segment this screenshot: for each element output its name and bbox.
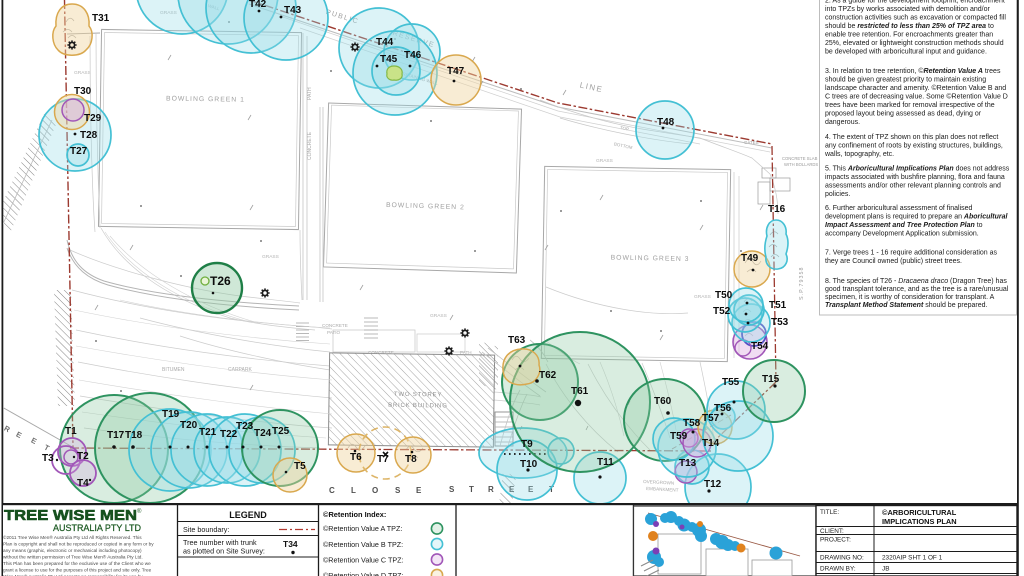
- svg-text:DRAWN BY:: DRAWN BY:: [820, 566, 856, 573]
- svg-text:BOWLING GREEN 3: BOWLING GREEN 3: [611, 255, 690, 263]
- svg-text:T24: T24: [254, 428, 272, 439]
- svg-text:8. The species of T26 - Dracae: 8. The species of T26 - Dracaena draco (…: [825, 278, 1007, 285]
- svg-text:GRASS: GRASS: [694, 294, 711, 300]
- svg-text:T59: T59: [670, 431, 688, 442]
- svg-text:©Retention Value D TPZ:: ©Retention Value D TPZ:: [323, 571, 404, 576]
- svg-text:©Retention Value C TPZ:: ©Retention Value C TPZ:: [323, 556, 404, 565]
- svg-text:E: E: [416, 486, 422, 495]
- svg-text:enable tree retention. For en: enable tree retention. For encroachments…: [825, 32, 993, 39]
- svg-text:3. In relation to tree retenti: 3. In relation to tree retention, ©Reten…: [825, 67, 1001, 75]
- svg-text:GRASS: GRASS: [430, 313, 447, 319]
- svg-text:trees have been marked for rem: trees have been marked for removal irres…: [825, 102, 995, 109]
- svg-text:S.P.79358: S.P.79358: [799, 267, 805, 300]
- svg-text:T42: T42: [249, 0, 267, 10]
- svg-text:T62: T62: [539, 370, 557, 381]
- svg-text:©Retention Value B TPZ:: ©Retention Value B TPZ:: [323, 540, 403, 549]
- svg-text:Impact Assessment and Tree Pro: Impact Assessment and Tree Protection Pl…: [825, 222, 983, 229]
- svg-text:AUSTRALIA PTY LTD: AUSTRALIA PTY LTD: [53, 523, 141, 534]
- svg-text:T19: T19: [162, 409, 180, 420]
- svg-text:any confinement of roots by ex: any confinement of roots by existing str…: [825, 143, 1003, 150]
- svg-text:development plans is required: development plans is required to prepare…: [825, 214, 1009, 221]
- svg-text:T23: T23: [236, 421, 254, 432]
- svg-text:good transplant tolerance, and: good transplant tolerance, and as the tr…: [825, 286, 1009, 293]
- svg-text:T45: T45: [380, 54, 398, 65]
- svg-text:Transplant Method Statement sh: Transplant Method Statement should be pr…: [825, 302, 988, 309]
- svg-text:T29: T29: [84, 113, 102, 124]
- svg-text:T17: T17: [107, 430, 125, 441]
- svg-text:IMPLICATIONS PLAN: IMPLICATIONS PLAN: [882, 517, 957, 526]
- svg-text:proposed layout being assessed: proposed layout being assessed as dead, …: [825, 111, 982, 118]
- svg-text:GRASS: GRASS: [74, 70, 91, 76]
- svg-text:4. The extent of TPZ shown on: 4. The extent of TPZ shown on this plan …: [825, 134, 998, 141]
- svg-text:T18: T18: [125, 430, 143, 441]
- svg-text:T9: T9: [521, 439, 533, 450]
- svg-text:2. As a guide for the developm: 2. As a guide for the development footpr…: [825, 0, 1005, 5]
- svg-text:TITLE:: TITLE:: [820, 509, 839, 516]
- svg-text:S: S: [395, 486, 401, 495]
- svg-text:PATIO: PATIO: [327, 330, 341, 335]
- svg-text:into TPZs by works associated: into TPZs by works associated with demol…: [825, 6, 991, 13]
- svg-text:O: O: [372, 486, 378, 495]
- svg-text:T58: T58: [683, 418, 701, 429]
- svg-text:T10: T10: [520, 459, 538, 470]
- svg-text:C: C: [329, 486, 335, 495]
- svg-text:T28: T28: [80, 130, 98, 141]
- svg-text:accompany Development Applicat: accompany Development Application submis…: [825, 231, 979, 238]
- svg-text:T47: T47: [447, 66, 465, 77]
- svg-text:T7: T7: [377, 454, 389, 465]
- svg-text:7. Verge trees 1 - 16 require: 7. Verge trees 1 - 16 require additional…: [825, 250, 997, 257]
- svg-text:T27: T27: [70, 146, 88, 157]
- svg-text:S: S: [449, 485, 455, 494]
- svg-text:construction activities such a: construction activities such as excavati…: [825, 15, 1006, 22]
- svg-text:TREE WISE MEN: TREE WISE MEN: [4, 508, 137, 524]
- svg-text:T54: T54: [751, 341, 769, 352]
- svg-text:T44: T44: [376, 37, 394, 48]
- svg-text:BITUMEN: BITUMEN: [162, 367, 185, 373]
- svg-text:25%, elevated or lightweight c: 25%, elevated or lightweight constructio…: [825, 40, 1004, 47]
- svg-text:specimen, it is worthy of cons: specimen, it is worthy of consideration …: [825, 294, 995, 301]
- svg-text:T49: T49: [741, 253, 759, 264]
- svg-text:©ARBORICULTURAL: ©ARBORICULTURAL: [882, 508, 957, 517]
- svg-text:T43: T43: [284, 5, 302, 16]
- svg-text:C trees are of decreasing valu: C trees are of decreasing value. Some ©R…: [825, 93, 1008, 101]
- svg-text:T3: T3: [42, 453, 54, 464]
- svg-text:T61: T61: [571, 386, 589, 397]
- svg-text:T50: T50: [715, 290, 733, 301]
- svg-text:T31: T31: [92, 13, 110, 24]
- svg-text:grant a license to use for the: grant a license to use for the purposes …: [3, 568, 152, 573]
- svg-text:T63: T63: [508, 335, 526, 346]
- svg-text:T4: T4: [77, 478, 89, 489]
- svg-text:impacts associated with bushfi: impacts associated with bushfire plannin…: [825, 174, 1005, 181]
- svg-text:should be restricted to less t: should be restricted to less than 25% of…: [825, 23, 994, 30]
- svg-text:R: R: [488, 485, 494, 494]
- svg-text:CLIENT:: CLIENT:: [820, 528, 844, 535]
- svg-text:T53: T53: [771, 317, 789, 328]
- svg-text:should be given greatest prior: should be given greatest priority to mai…: [825, 77, 986, 84]
- svg-text:CONCRETE: CONCRETE: [368, 350, 394, 355]
- svg-text:T8: T8: [405, 454, 417, 465]
- svg-text:This Plan has been prepared fo: This Plan has been prepared for the excl…: [3, 561, 151, 566]
- svg-text:T34: T34: [283, 539, 298, 549]
- svg-text:T5: T5: [294, 461, 306, 472]
- svg-text:T46: T46: [404, 50, 422, 61]
- svg-text:©2011 Tree Wise Men® Australia: ©2011 Tree Wise Men® Australia Pty Ltd A…: [3, 534, 142, 540]
- svg-text:T: T: [469, 485, 474, 494]
- svg-text:T30: T30: [74, 86, 92, 97]
- svg-text:be developed with arboricultur: be developed with arboricultural input a…: [825, 49, 987, 56]
- svg-text:T52: T52: [713, 306, 731, 317]
- svg-text:policies.: policies.: [825, 191, 850, 198]
- svg-text:Site boundary:: Site boundary:: [183, 525, 229, 534]
- svg-text:as plotted on Site Survey:: as plotted on Site Survey:: [183, 547, 265, 556]
- svg-text:T20: T20: [180, 420, 198, 431]
- svg-text:T1: T1: [65, 426, 77, 437]
- svg-text:T16: T16: [768, 204, 786, 215]
- svg-text:CONCRETE: CONCRETE: [322, 323, 348, 328]
- svg-text:©Retention Index:: ©Retention Index:: [323, 510, 386, 519]
- svg-text:CONCRETE SLAB: CONCRETE SLAB: [782, 156, 818, 161]
- svg-text:DRAWING NO:: DRAWING NO:: [820, 555, 864, 562]
- svg-text:T11: T11: [597, 457, 614, 468]
- svg-text:T25: T25: [272, 426, 290, 437]
- svg-text:without the written permission: without the written permission of Tree W…: [3, 554, 143, 560]
- svg-text:landscape character and amenit: landscape character and amenity. ©Retent…: [825, 84, 1006, 92]
- svg-text:any means (graphic, electronic: any means (graphic, electronic or mechan…: [3, 548, 142, 553]
- svg-text:JB: JB: [882, 566, 889, 573]
- svg-text:T26: T26: [210, 274, 231, 288]
- svg-text:T48: T48: [657, 117, 675, 128]
- svg-text:PROJECT:: PROJECT:: [820, 537, 851, 544]
- svg-text:T13: T13: [679, 458, 697, 469]
- svg-text:GRASS: GRASS: [262, 254, 279, 260]
- svg-text:T55: T55: [722, 377, 740, 388]
- svg-text:T60: T60: [654, 396, 672, 407]
- svg-text:5. This Arboricultural Implica: 5. This Arboricultural Implications Plan…: [825, 166, 1010, 173]
- svg-text:GRASS: GRASS: [596, 158, 613, 164]
- svg-text:T2: T2: [77, 451, 89, 462]
- svg-text:they are Council owned (public: they are Council owned (public) street t…: [825, 258, 962, 265]
- svg-text:T21: T21: [199, 427, 217, 438]
- svg-text:Plan is copyright and shall no: Plan is copyright and shall not be repro…: [3, 542, 154, 547]
- svg-text:T15: T15: [762, 374, 780, 385]
- svg-text:T12: T12: [704, 479, 722, 490]
- svg-text:walls, topography, etc.: walls, topography, etc.: [824, 151, 894, 158]
- svg-text:PATH: PATH: [460, 350, 472, 355]
- svg-text:©Retention Value A TPZ:: ©Retention Value A TPZ:: [323, 524, 402, 533]
- svg-text:WITH BOLLARDS: WITH BOLLARDS: [784, 162, 818, 167]
- svg-text:6. Further arboricultural asse: 6. Further arboricultural assessment of …: [825, 205, 973, 212]
- svg-text:BOWLING GREEN 1: BOWLING GREEN 1: [166, 95, 245, 103]
- svg-text:TWO STOREY: TWO STOREY: [394, 392, 442, 399]
- svg-text:PATH: PATH: [307, 87, 313, 100]
- svg-text:dangerous.: dangerous.: [825, 119, 860, 126]
- svg-text:T6: T6: [350, 452, 362, 463]
- svg-text:BRICK BUILDING: BRICK BUILDING: [388, 403, 448, 410]
- svg-text:T56: T56: [714, 403, 732, 414]
- svg-text:T51: T51: [769, 300, 787, 311]
- svg-text:CONCRETE: CONCRETE: [307, 131, 313, 160]
- svg-text:assessments and/or other relev: assessments and/or other relevant planni…: [825, 183, 1001, 190]
- svg-text:LEGEND: LEGEND: [229, 510, 267, 520]
- svg-text:T57: T57: [702, 413, 720, 424]
- svg-text:®: ®: [137, 508, 142, 515]
- svg-text:L: L: [351, 486, 356, 495]
- svg-text:T14: T14: [702, 438, 720, 449]
- svg-text:2320AIP SHT 1 OF 1: 2320AIP SHT 1 OF 1: [882, 555, 943, 562]
